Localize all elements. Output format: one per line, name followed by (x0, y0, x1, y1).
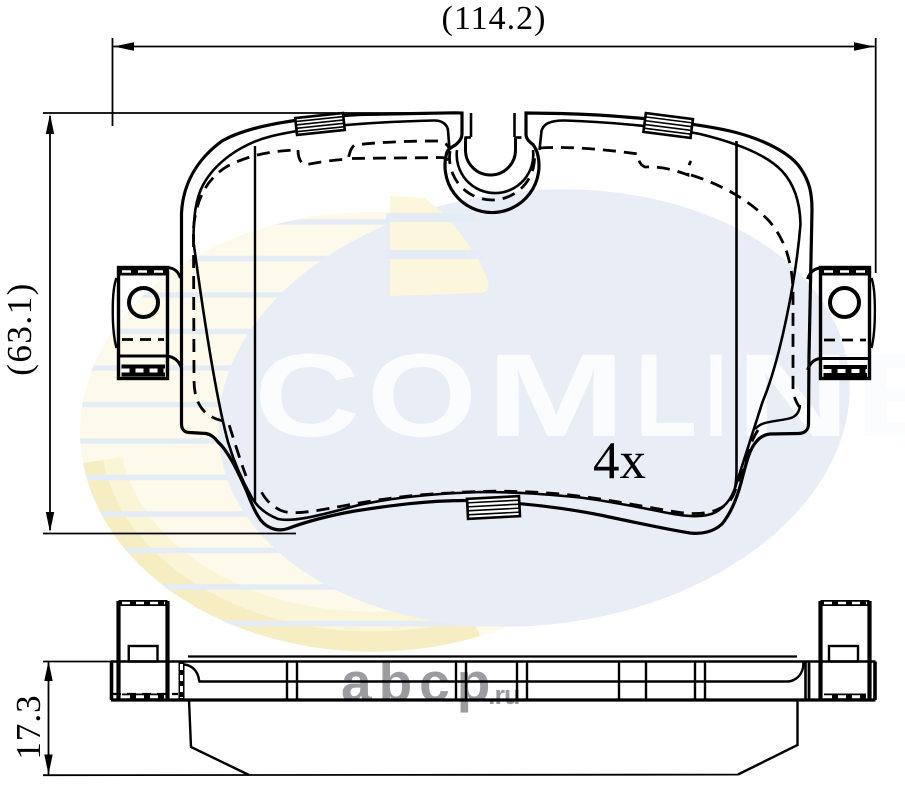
svg-text:17.3: 17.3 (9, 694, 48, 759)
svg-text:C: C (254, 330, 360, 462)
svg-text:(114.2): (114.2) (442, 0, 547, 37)
svg-text:4x: 4x (593, 432, 646, 490)
svg-text:.ru: .ru (488, 680, 520, 710)
svg-text:O: O (367, 330, 477, 462)
svg-text:I: I (705, 330, 727, 462)
svg-text:(63.1): (63.1) (0, 282, 39, 376)
svg-text:N: N (736, 330, 850, 462)
svg-text:E: E (855, 330, 905, 462)
